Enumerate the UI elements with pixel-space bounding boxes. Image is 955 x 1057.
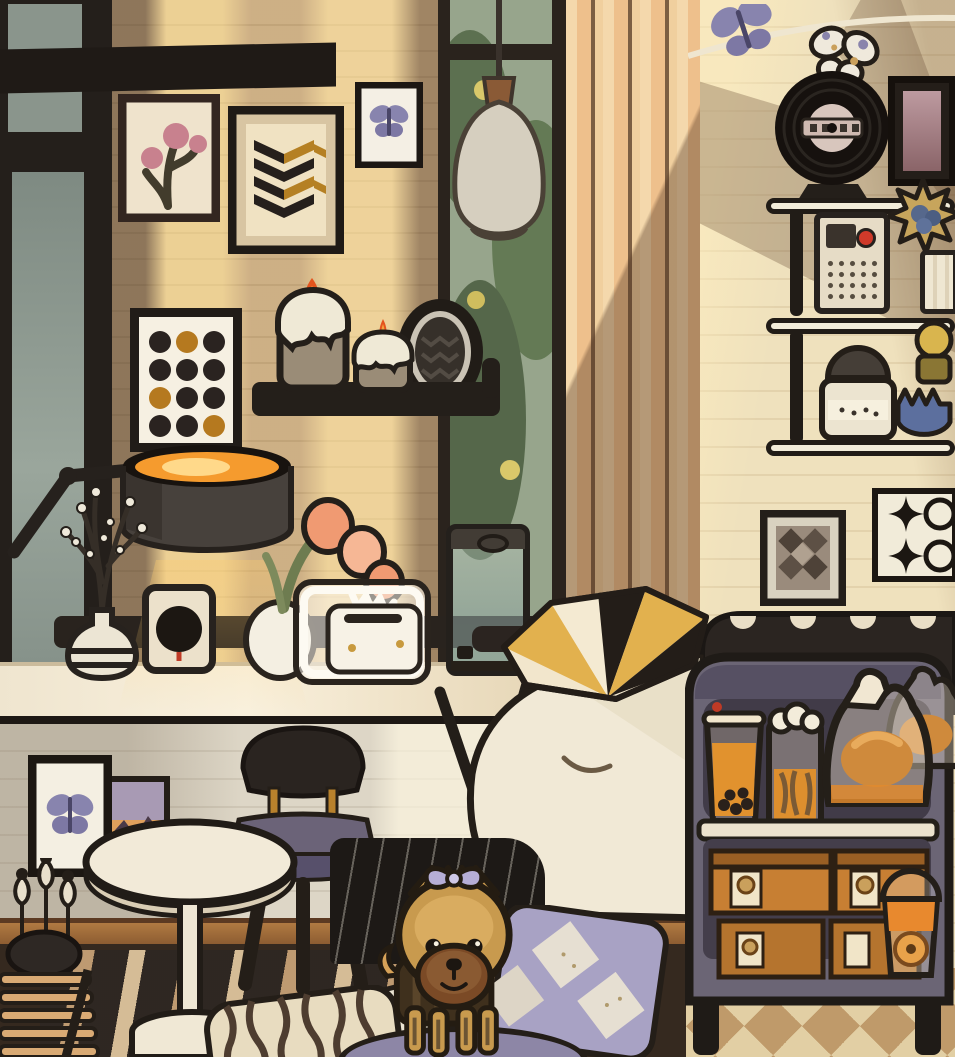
tulip-crate[interactable] (232, 490, 434, 690)
snack-cart[interactable] (685, 645, 955, 1057)
shelf-board (766, 440, 955, 456)
vinyl-record[interactable] (770, 68, 896, 204)
radio[interactable] (814, 212, 890, 314)
yorkie-dog[interactable] (372, 860, 534, 1057)
room-scene (0, 0, 955, 1057)
cookie-jar[interactable] (814, 338, 902, 444)
chevron-art[interactable] (228, 106, 344, 254)
boba-tea-cup[interactable] (704, 702, 764, 821)
dart-pot[interactable] (8, 858, 80, 976)
perfume-bottle[interactable] (908, 318, 955, 390)
triangle-pillow[interactable] (496, 585, 714, 705)
shelf-post (790, 206, 803, 316)
outlet-socket (156, 606, 202, 652)
cream-top-drink[interactable] (769, 704, 822, 825)
striped-curtain (566, 0, 712, 662)
radio-led (856, 228, 876, 248)
ceiling-beam (0, 42, 336, 93)
outlet-pin (177, 652, 182, 661)
dark-photo-frame[interactable] (888, 76, 955, 186)
blue-jar[interactable] (892, 382, 955, 446)
radio-screen (826, 224, 856, 248)
radio-grille-icon (825, 258, 879, 302)
framed-butterfly-top[interactable] (355, 82, 423, 168)
candle-shelf[interactable] (250, 260, 500, 440)
flower-art[interactable] (118, 94, 220, 222)
dome-lid-drink[interactable] (883, 871, 939, 975)
pendant-lamp[interactable] (444, 0, 556, 250)
vase-with-branches[interactable] (52, 462, 152, 682)
power-outlet[interactable] (142, 584, 216, 674)
slat-rack[interactable] (0, 858, 118, 1057)
tissue-box[interactable] (328, 594, 420, 672)
photo (903, 91, 941, 171)
candle-large[interactable] (278, 278, 348, 388)
dispenser-ring-icon (477, 534, 509, 553)
ribbed-mug[interactable] (920, 250, 955, 314)
hair-bow-icon (426, 869, 482, 888)
shelf-post (790, 330, 803, 444)
sparkle-art[interactable] (872, 488, 955, 582)
diamond-checker-art[interactable] (760, 510, 846, 606)
